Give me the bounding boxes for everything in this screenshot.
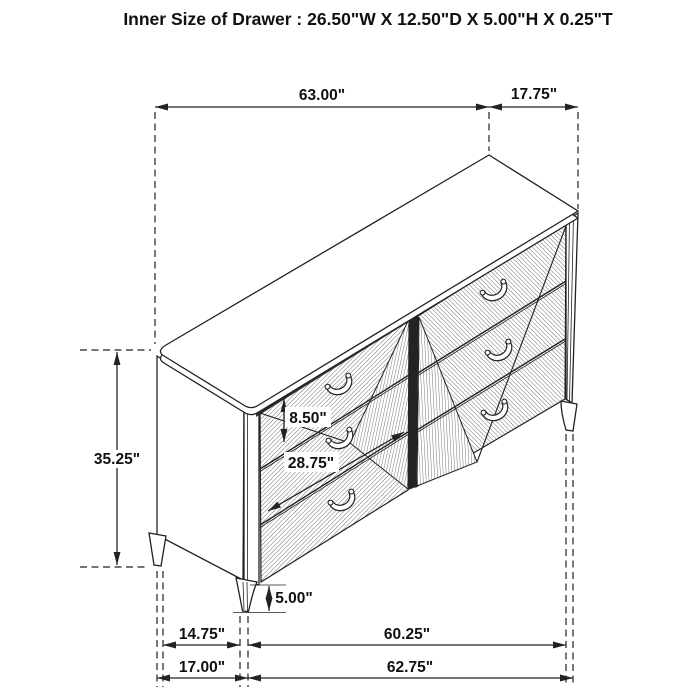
dimension-overall-height: 35.25" <box>92 352 142 565</box>
dim-label-drawer-front-height: 8.50" <box>289 410 327 427</box>
front-corner-stile <box>244 407 259 585</box>
dimension-base-inner-width: 60.25" <box>248 626 566 645</box>
dimension-base-outer-width: 62.75" <box>248 659 573 678</box>
dim-label-base-outer-width: 62.75" <box>387 659 433 676</box>
dim-label-top-width: 63.00" <box>299 87 345 104</box>
dim-label-base-inner-width: 60.25" <box>384 626 430 643</box>
dim-label-base-inner-depth: 14.75" <box>179 626 225 643</box>
dim-label-base-outer-depth: 17.00" <box>179 659 225 676</box>
front-right-leg <box>561 401 577 431</box>
dim-label-overall-height: 35.25" <box>94 451 140 468</box>
dim-label-leg-height: 5.00" <box>275 590 313 607</box>
back-left-leg <box>149 533 166 566</box>
diagram-title: Inner Size of Drawer : 26.50"W X 12.50"D… <box>123 9 613 29</box>
dimension-base-outer-depth: 17.00" <box>157 659 248 678</box>
dim-label-drawer-bank-width: 28.75" <box>288 455 334 472</box>
dim-label-top-depth: 17.75" <box>511 86 557 103</box>
dimension-base-inner-depth: 14.75" <box>163 626 240 645</box>
diagram-canvas: Inner Size of Drawer : 26.50"W X 12.50"D… <box>0 0 700 700</box>
dimension-top-width: 63.00" <box>155 87 489 107</box>
dresser-body <box>149 155 578 612</box>
right-edge-strip <box>566 213 578 403</box>
dimension-top-depth: 17.75" <box>489 86 578 107</box>
dresser-dimension-drawing: Inner Size of Drawer : 26.50"W X 12.50"D… <box>0 0 700 700</box>
front-left-leg <box>236 578 257 612</box>
